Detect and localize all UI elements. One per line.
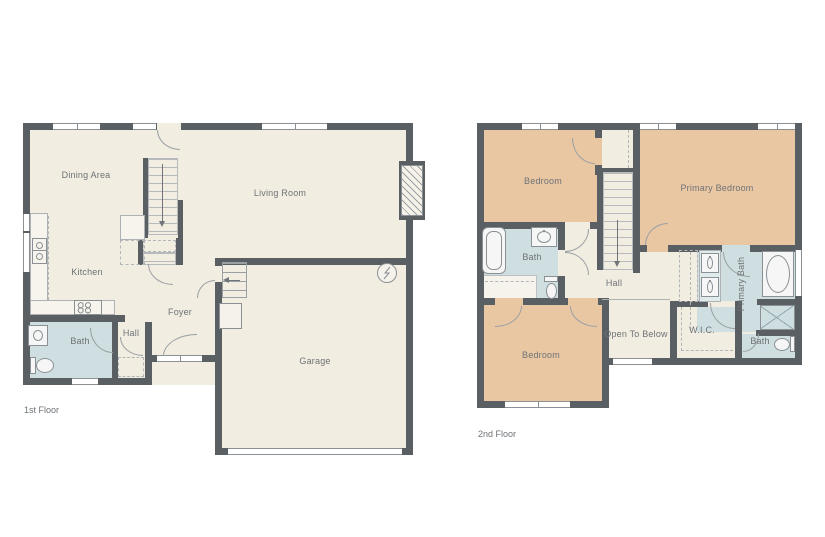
staircase <box>603 172 633 270</box>
stair-down-arrow <box>617 220 618 264</box>
wic-rod <box>681 350 733 351</box>
room-label-wic: W.I.C. <box>689 325 715 335</box>
room-label-primary-bath: Primary Bath <box>736 257 746 311</box>
sink-icon <box>701 277 719 297</box>
sink-icon <box>701 253 719 273</box>
wall <box>735 305 742 358</box>
shower-icon <box>760 305 795 330</box>
window <box>522 123 558 130</box>
door-gap <box>568 298 598 305</box>
second-floor-plan: Bedroom Primary Bedroom Bath Hall Primar… <box>0 0 825 537</box>
closet-rod <box>628 130 629 168</box>
closet-rod <box>485 281 534 282</box>
room-label-primary-bedroom: Primary Bedroom <box>680 183 753 193</box>
toilet-bowl-icon <box>546 283 557 299</box>
toilet-tank-icon <box>544 276 558 282</box>
door-gap <box>647 245 668 252</box>
hall-nook <box>679 250 698 302</box>
room-label-bath2: Bath <box>522 252 541 262</box>
door-gap <box>595 138 602 165</box>
open-to-below-railing <box>602 299 670 300</box>
toilet-bowl-icon <box>774 338 790 351</box>
room-label-hall2: Hall <box>606 278 622 288</box>
door-gap <box>558 250 565 276</box>
toilet-tank-icon <box>790 336 795 352</box>
floor-caption-2nd: 2nd Floor <box>478 429 516 439</box>
window <box>613 358 652 365</box>
bedroom2-closet <box>482 275 537 300</box>
wall <box>602 303 609 401</box>
room-label-bedroom2: Bedroom <box>522 350 560 360</box>
room-label-bedroom1: Bedroom <box>524 176 562 186</box>
sink-icon <box>531 227 557 247</box>
room-label-open-to-below: Open To Below <box>604 329 667 339</box>
wall <box>670 301 677 365</box>
window <box>795 250 802 296</box>
room-label-bath3: Bath <box>750 336 769 346</box>
primary-tub-icon <box>762 251 794 297</box>
door-gap <box>495 298 523 305</box>
door-gap <box>722 245 750 252</box>
wic-rod <box>681 307 682 351</box>
window <box>505 401 570 408</box>
floor-plan-canvas: Dining Area Living Room Kitchen Bath Hal… <box>0 0 825 537</box>
door-gap <box>565 222 590 229</box>
wall <box>633 127 640 273</box>
bathtub-icon <box>482 227 506 274</box>
wall <box>795 123 802 365</box>
window <box>640 123 676 130</box>
window <box>758 123 795 130</box>
